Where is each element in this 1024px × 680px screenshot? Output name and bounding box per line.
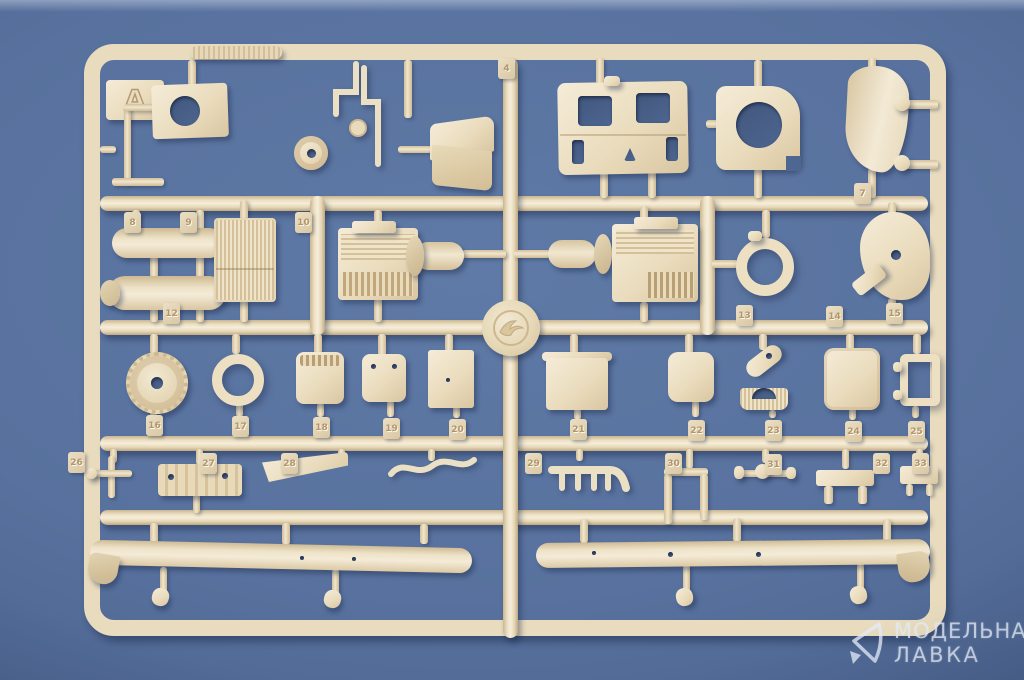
sprue-stem — [648, 170, 656, 198]
part-engine-left-sump — [343, 272, 413, 296]
part-cab-seam — [560, 134, 686, 136]
part-l-bracket-1-boss — [894, 95, 910, 111]
part-engine-right-flange — [594, 234, 612, 274]
part-air-filter-grille — [300, 355, 340, 366]
part-bumper-left-hole-1 — [300, 556, 304, 560]
sprue-stem — [188, 60, 196, 86]
part-bar-with-legs — [816, 470, 874, 486]
sprue-stem — [754, 60, 762, 88]
sprue-stem — [150, 334, 158, 354]
watermark-line1: МОДЕЛЬНАЯ — [894, 620, 1024, 644]
sprue-stem — [754, 166, 762, 198]
part-u-bracket-leg-left — [664, 474, 672, 524]
part-corner-bracket — [124, 104, 131, 184]
part-number-tag: 12 — [163, 303, 180, 324]
sprue-stem — [912, 406, 919, 418]
part-bumper-left-hole-2 — [352, 557, 356, 561]
part-radiator-seam — [216, 268, 274, 270]
part-small-axle-end-right — [786, 467, 796, 479]
part-channel-stub-1 — [893, 362, 902, 372]
sprue-stem — [196, 210, 204, 230]
mold-info-plate — [190, 46, 282, 59]
part-engine-right-gearbox — [548, 240, 596, 268]
part-cab-window-right — [636, 93, 670, 123]
sprue-stem — [640, 302, 648, 322]
sprue-stem — [387, 400, 394, 417]
part-large-ring — [736, 238, 794, 296]
sprue-stem — [240, 300, 248, 322]
sprue-stem — [420, 524, 428, 544]
part-hood-front — [432, 145, 492, 191]
brand-medallion — [482, 300, 540, 356]
part-engine-left-ribs — [341, 234, 415, 260]
part-engine-right-valve-cover — [634, 217, 678, 229]
part-number-tag: 18 — [313, 417, 330, 438]
part-cross-knob — [86, 468, 97, 479]
part-small-axle-end-left — [734, 466, 744, 479]
part-flat-panel-hole — [446, 378, 450, 382]
watermark: МОДЕЛЬНАЯ ЛАВКА — [846, 620, 1024, 668]
part-ring-housing-hole — [736, 102, 782, 148]
part-door-panel — [546, 358, 608, 410]
part-number-tag: 8 — [124, 212, 141, 233]
sprue-stem — [913, 334, 921, 354]
brand-logo-icon — [482, 300, 540, 356]
part-fuel-tank-cap — [100, 280, 120, 306]
part-number-tag: 9 — [180, 212, 197, 233]
part-radiator — [214, 218, 276, 302]
part-number-tag: 13 — [736, 305, 753, 326]
part-engine-right-sump — [648, 272, 694, 298]
sprue-stem — [196, 256, 204, 278]
watermark-line2: ЛАВКА — [894, 644, 1024, 668]
part-corner-bracket-foot — [112, 178, 164, 186]
sprue-stem — [769, 410, 776, 418]
part-exhaust-manifold — [544, 456, 632, 502]
part-box-rivet-2 — [392, 364, 397, 369]
sprue-stem — [150, 256, 158, 278]
part-small-plate-leg-2 — [926, 484, 933, 496]
sprue-stem — [580, 519, 588, 543]
part-cab-slot-left — [572, 140, 584, 164]
part-number-tag: 10 — [295, 212, 312, 233]
sprue-stem — [570, 334, 578, 354]
part-number-tag: 15 — [886, 303, 903, 324]
part-sprocket-hole — [151, 377, 163, 389]
sprue-stem — [733, 518, 741, 542]
sprue-stem — [374, 298, 382, 322]
part-flat-panel — [428, 350, 474, 408]
part-winch-hole-2 — [222, 473, 228, 479]
sprue-stem — [462, 250, 506, 258]
part-pipe-assembly — [318, 58, 390, 180]
part-blower-hole — [891, 250, 901, 260]
part-ring-housing-notch — [786, 156, 801, 171]
part-cab-top-tab — [604, 76, 620, 86]
part-plate-hole — [170, 96, 200, 126]
part-rounded-panel — [668, 352, 714, 402]
part-number-tag: 22 — [688, 420, 705, 441]
sprue-runner-link-left — [310, 196, 325, 335]
sprue-stem — [686, 449, 693, 469]
part-engine-left-flange — [406, 236, 424, 276]
sprue-stem — [282, 523, 290, 545]
sprue-stem — [378, 334, 386, 356]
part-channel-stub-2 — [893, 390, 902, 400]
part-box-with-rivets — [362, 354, 406, 402]
part-cab-slot-right — [666, 137, 678, 161]
part-number-tag: 24 — [845, 421, 862, 442]
part-winch-hole-1 — [168, 474, 174, 480]
part-number-tag: 26 — [68, 452, 85, 473]
part-number-tag: 29 — [525, 453, 542, 474]
sprue-stem — [514, 250, 550, 258]
sprue-stem — [398, 146, 432, 153]
background-light-band — [0, 0, 1024, 12]
sprue-stem — [712, 260, 738, 268]
part-engine-right-ribs — [616, 230, 694, 254]
part-number-tag: 14 — [826, 306, 843, 327]
part-number-tag: 32 — [873, 453, 890, 474]
part-number-tag: 23 — [765, 420, 782, 441]
sprue-stem — [240, 200, 248, 220]
part-number-tag: 17 — [232, 416, 249, 437]
part-number-tag: 21 — [570, 419, 587, 440]
sprue-stem — [404, 60, 412, 118]
part-number-tag: 28 — [281, 453, 298, 474]
part-bumper-right-hole-3 — [756, 552, 761, 557]
part-number-tag: 20 — [449, 419, 466, 440]
part-bar-leg-1 — [824, 486, 833, 504]
part-cross-rod — [108, 456, 115, 498]
sprue-stem — [314, 334, 322, 354]
part-number-tag: 30 — [665, 453, 682, 474]
part-engine-left-valve-cover — [352, 221, 396, 233]
part-number-tag: 27 — [200, 453, 217, 474]
part-number-tag: 31 — [765, 454, 782, 475]
photo-model-kit-sprue: A — [0, 0, 1024, 680]
part-channel-frame — [900, 354, 940, 406]
part-large-ring-tab — [748, 231, 762, 241]
part-tie-rod — [386, 452, 478, 484]
watermark-logo-icon — [846, 620, 886, 668]
sprue-stem — [596, 58, 604, 84]
part-number-tag: 19 — [383, 418, 400, 439]
part-small-plate-leg-1 — [906, 484, 913, 496]
sprue-stem — [193, 494, 200, 513]
part-bumper-right-hole-1 — [592, 551, 596, 555]
part-number-tag: 25 — [908, 421, 925, 442]
part-number-tag: 4 — [498, 58, 515, 79]
sprue-stem — [685, 334, 693, 354]
part-l-bracket-2-boss — [894, 155, 910, 171]
sprue-stem — [762, 210, 770, 238]
part-bar-leg-2 — [858, 486, 867, 504]
sprue-stem — [317, 403, 324, 417]
sprue-stem — [100, 146, 116, 153]
sprue-stem — [692, 400, 699, 417]
part-box-rivet-1 — [371, 364, 376, 369]
part-number-tag: 16 — [146, 415, 163, 436]
sprue-stem — [842, 449, 849, 469]
part-number-tag: 7 — [854, 183, 871, 204]
part-cab-window-left — [578, 96, 612, 126]
sprue-stem — [232, 334, 240, 354]
part-bumper-right-hole-2 — [668, 552, 673, 557]
part-number-tag: 33 — [912, 453, 929, 474]
part-mount-arm-hole — [766, 353, 772, 359]
part-small-hub-hole — [307, 149, 316, 158]
part-large-hatch-panel — [824, 348, 880, 410]
watermark-text: МОДЕЛЬНАЯ ЛАВКА — [894, 620, 1024, 667]
part-u-bracket-leg-right — [700, 474, 708, 520]
part-ring-gasket — [212, 354, 264, 406]
